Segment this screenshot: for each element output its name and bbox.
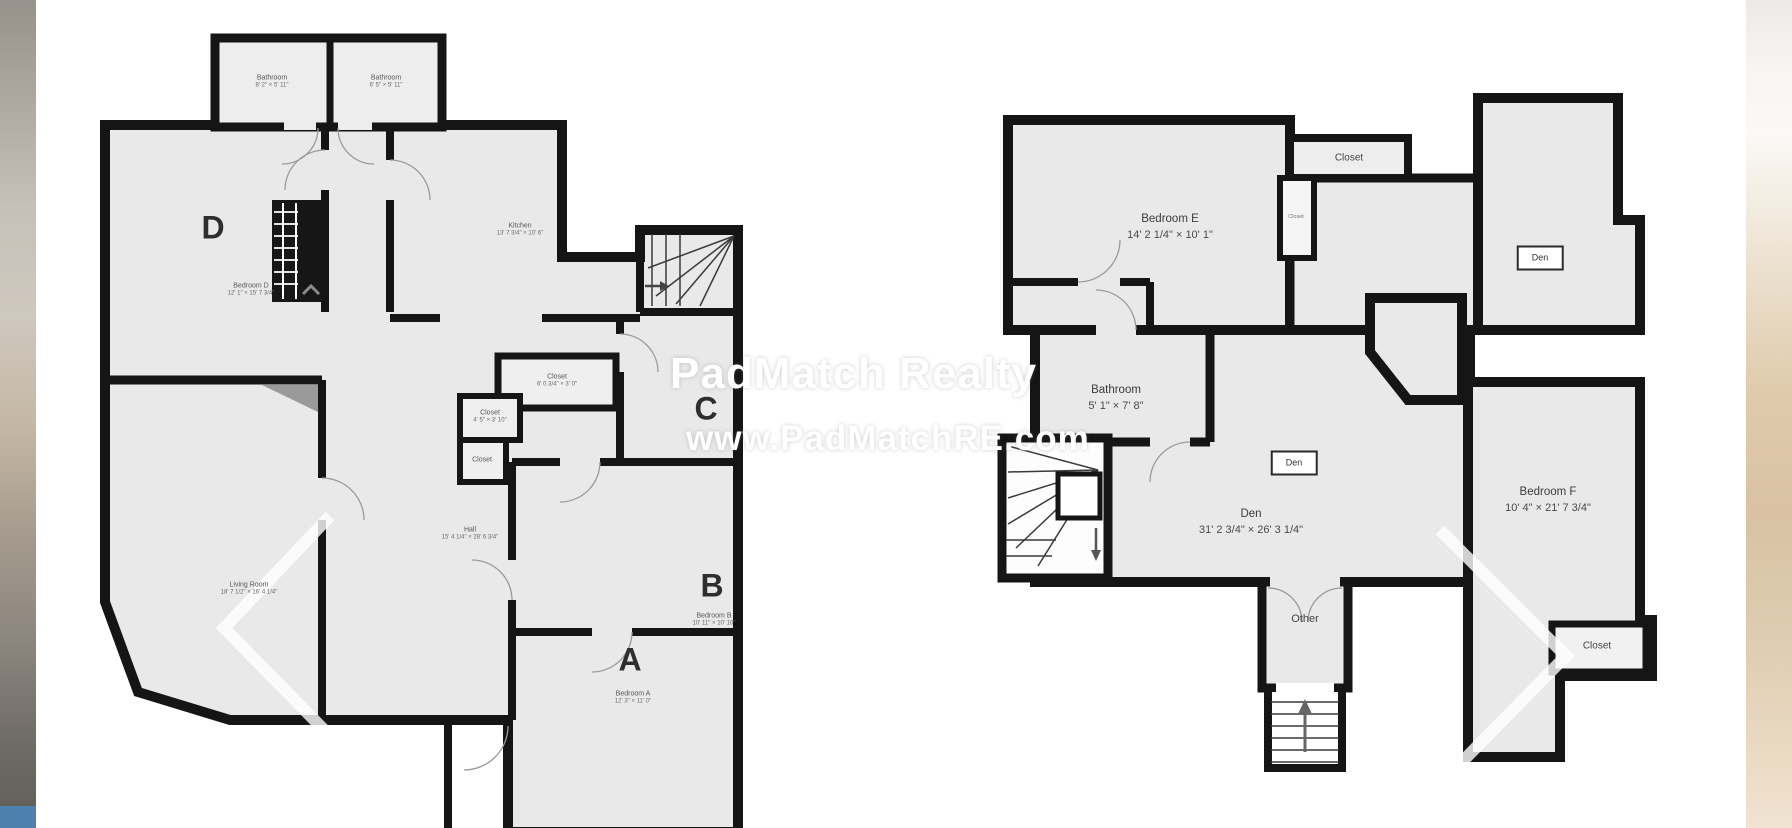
room-letter-b: B <box>700 568 723 605</box>
room-label-closet-small: Closet <box>1288 214 1304 220</box>
other-room <box>1262 582 1348 688</box>
room-label-bedroom-a: Bedroom A12' 3" × 11' 0" <box>615 689 651 706</box>
room-label-closet-2: Closet4' 5" × 3' 10" <box>473 408 506 425</box>
room-letter-d: D <box>201 210 224 247</box>
watermark-brand: PadMatch Realty <box>670 349 1037 399</box>
room-label-bathroom-1: Bathroom8' 2" × 5' 11" <box>256 73 289 90</box>
den-upper-room <box>1478 98 1640 330</box>
left-plan-outline <box>105 125 738 828</box>
watermark-website: www.PadMatchRE.com <box>686 419 1090 459</box>
room-label-den: Den31' 2 3/4" × 26' 3 1/4" <box>1199 506 1303 538</box>
left-floor-plan <box>105 38 738 828</box>
room-label-bedroom-b: Bedroom B10' 11" × 10' 10" <box>693 611 736 628</box>
room-label-other: Other <box>1291 613 1319 625</box>
room-label-bedroom-f: Bedroom F10' 4" × 21' 7 3/4" <box>1505 484 1591 516</box>
door-arc <box>464 726 508 770</box>
room-label-closet-bottom: Closet <box>1583 641 1611 652</box>
bedroom-f-room <box>1468 382 1652 757</box>
room-label-bedroom-d: Bedroom D12' 1" × 15' 7 3/4" <box>228 281 275 298</box>
room-label-hall: Hall15' 4 1/4" × 28' 6 3/4" <box>442 525 499 542</box>
room-label-living-room: Living Room18' 7 1/2" × 16' 4 1/4" <box>221 580 278 597</box>
room-label-kitchen: Kitchen13' 7 3/4" × 10' 6" <box>497 221 544 238</box>
room-label-closet-1: Closet6' 0 3/4" × 3' 0" <box>537 372 577 389</box>
room-label-bathroom-2: Bathroom6' 5" × 5' 11" <box>370 73 403 90</box>
room-label-bathroom-right: Bathroom5' 1" × 7' 8" <box>1088 382 1143 414</box>
room-label-bedroom-e: Bedroom E14' 2 1/4" × 10' 1" <box>1127 211 1213 243</box>
room-label-closet-3: Closet <box>472 455 492 464</box>
room-letter-a: A <box>618 642 641 679</box>
den-box-label-upper: Den <box>1517 246 1564 271</box>
room-label-closet-top: Closet <box>1335 153 1363 164</box>
floor-plan-photo: Bathroom8' 2" × 5' 11" Bathroom6' 5" × 5… <box>0 0 1792 828</box>
floor-plan-drawing <box>0 0 1792 828</box>
den-box-label-lower: Den <box>1271 451 1318 476</box>
closet-stairs-block <box>272 200 325 302</box>
